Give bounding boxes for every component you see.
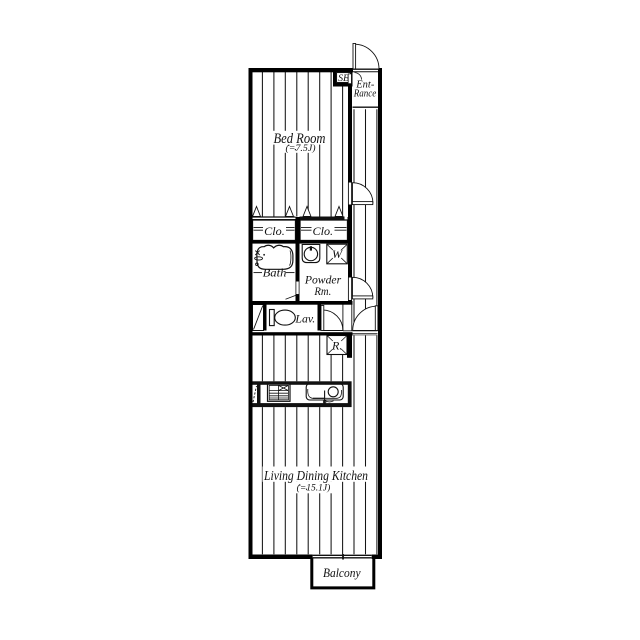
svg-text:(=15.1J): (=15.1J) <box>297 482 331 493</box>
svg-text:W: W <box>332 247 343 261</box>
svg-text:R.: R. <box>331 338 342 352</box>
svg-text:Rm.: Rm. <box>313 286 331 298</box>
svg-text:SB: SB <box>338 74 349 84</box>
svg-text:Balcony: Balcony <box>323 566 361 580</box>
svg-text:Bath: Bath <box>263 268 287 280</box>
svg-text:Clo.: Clo. <box>264 224 285 238</box>
svg-text:(=7.5J): (=7.5J) <box>286 143 316 154</box>
svg-text:Rance: Rance <box>353 88 377 99</box>
svg-text:Clo.: Clo. <box>313 224 334 238</box>
svg-text:Lav.: Lav. <box>294 313 315 325</box>
svg-text:Powder: Powder <box>304 275 342 287</box>
